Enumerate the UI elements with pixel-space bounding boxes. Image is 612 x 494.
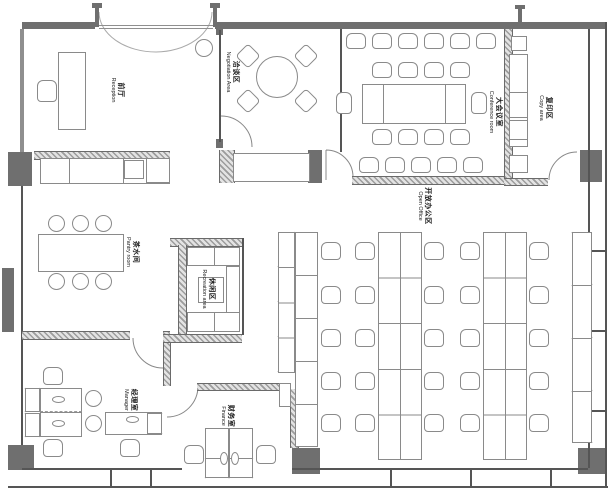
wall [21,186,23,445]
guest-chair [85,390,102,407]
office-chair [424,329,444,347]
wall [22,22,95,29]
room-label-manager-en: Manager [123,389,129,411]
office-chair [424,372,444,390]
office-chair [184,445,204,464]
room-label-copy-en: Copy area [538,95,544,120]
window-mullion [150,470,152,487]
entrance-door-post-cap [210,3,220,8]
printer [509,120,528,140]
office-chair [424,129,444,145]
office-chair [424,33,444,49]
office-chair [321,286,341,304]
office-chair [336,92,352,114]
entrance-door-post-cap [92,3,102,8]
room-label-open-office: 开放办公区 Open Office [417,187,431,225]
keyboard [220,452,228,465]
partition-wall [504,178,548,186]
copy-cabinet [511,36,527,51]
office-chair [359,157,379,173]
wall [20,29,24,152]
room-label-reception-zh: 前厅 [116,83,124,98]
room-label-copy: 复印区 Copy area [538,95,552,120]
column-pillar [580,150,602,182]
room-label-finance-zh: 财务室 [226,405,234,428]
sofa-bench [226,266,240,313]
partition-wall [22,331,130,340]
office-chair [450,129,470,145]
window-mullion [470,470,472,487]
desk-column [295,232,318,447]
office-chair [398,62,418,78]
office-chair [321,329,341,347]
x-cabinet [25,413,40,437]
pantry-table [38,234,124,272]
reception-desk [58,52,86,130]
wall-post-cap [515,5,525,9]
office-chair [321,414,341,432]
cooktop [124,160,144,179]
office-chair [398,33,418,49]
room-label-manager: 经理室 Manager [123,389,137,412]
wall [219,30,221,142]
window-wall-outer [8,486,608,488]
office-chair [372,33,392,49]
wall [242,238,244,335]
office-chair [460,372,480,390]
office-chair [346,33,366,49]
office-chair [460,286,480,304]
window-wall-outer [605,22,607,488]
office-chair [256,445,276,464]
office-chair [529,372,549,390]
room-label-recreation-en: Recreation area [201,269,207,308]
office-chair [355,242,375,260]
room-label-manager-zh: 经理室 [129,389,137,412]
window-wall [22,468,182,470]
office-chair [437,157,457,173]
office-chair [355,372,375,390]
partition-wall [163,338,171,386]
room-label-recreation: 休闲区 Recreation area [201,269,215,308]
room-label-negotiation: 洽谈区 Negotiation Area [225,52,239,93]
office-chair [43,439,63,457]
wall-stub [308,150,322,183]
stool [72,273,89,290]
room-label-conference: 大会议室 Conference room [488,91,502,134]
floor-plan: 前厅 Reception 洽谈区 Negotiation Area 大会议室 C… [0,0,612,494]
office-chair [529,414,549,432]
x-cabinet [25,388,40,412]
column-pillar [8,445,34,470]
room-label-copy-zh: 复印区 [544,97,552,120]
room-label-reception: 前厅 Reception [110,78,124,103]
keyboard [52,420,65,427]
office-chair [321,372,341,390]
keyboard [126,416,139,423]
office-chair [450,62,470,78]
room-label-pantry-en: Pantry room [125,237,131,267]
partition-wall [163,334,242,343]
entrance-door-post [213,6,217,27]
office-chair [321,242,341,260]
room-label-reception-en: Reception [110,78,116,103]
window-mullion [550,470,552,487]
office-chair [476,33,496,49]
office-chair [372,129,392,145]
room-label-pantry-zh: 茶水间 [131,241,139,264]
stool [48,215,65,232]
room-label-open-office-zh: 开放办公区 [423,187,431,225]
room-label-open-office-en: Open Office [417,191,423,220]
sofa-bench [187,312,240,332]
sofa-bench [187,247,240,266]
window-mullion [390,470,392,487]
office-chair [385,157,405,173]
office-chair [355,329,375,347]
conference-table [362,84,466,124]
locker [279,383,291,407]
room-label-finance-en: Finance [220,406,226,426]
office-chair [398,129,418,145]
office-chair [460,414,480,432]
office-chair [529,329,549,347]
keyboard [52,396,65,403]
wall-post [518,8,522,22]
office-chair [529,242,549,260]
entrance-door-post [95,6,99,27]
room-label-recreation-zh: 休闲区 [207,278,215,301]
office-chair [424,62,444,78]
stool [95,273,112,290]
keyboard [231,452,239,465]
partition-wall [352,176,504,185]
office-chair [43,367,63,385]
partition-wall [197,383,291,391]
coat-closet [233,153,310,182]
photocopier [509,92,528,118]
office-chair [411,157,431,173]
desk-bank [378,232,422,460]
partition-wall [178,245,187,334]
column-pillar [8,152,32,186]
bookshelf-cabinets [278,232,295,373]
room-label-negotiation-en: Negotiation Area [225,52,231,93]
office-chair [529,286,549,304]
x-cabinet [147,413,162,434]
bookshelf-cabinets [572,232,592,443]
office-chair [355,286,375,304]
column-pillar [578,448,606,474]
negotiation-round-table [256,56,298,98]
entrance-threshold [99,25,213,26]
column-pillar [2,268,14,332]
window-mullion [110,470,112,487]
office-chair [424,242,444,260]
room-label-negotiation-zh: 洽谈区 [231,61,239,84]
office-chair [424,286,444,304]
exhaust-fan [146,158,170,183]
office-chair [424,414,444,432]
stool [72,215,89,232]
office-chair [460,329,480,347]
office-chair [355,414,375,432]
guest-chair [195,39,213,57]
wall [340,29,342,152]
office-chair [450,33,470,49]
office-chair [120,439,140,457]
stool [48,273,65,290]
window-wall [292,468,588,470]
room-label-pantry: 茶水间 Pantry room [125,237,139,267]
office-chair [460,242,480,260]
office-chair [463,157,483,173]
stool [95,215,112,232]
entrance-threshold [99,28,213,29]
desk-bank [483,232,527,460]
room-label-conference-en: Conference room [488,91,494,134]
office-chair [37,80,57,102]
office-chair [471,92,487,114]
guest-chair [85,415,102,432]
wall [215,22,606,29]
paper-shredder [509,155,528,173]
office-chair [372,62,392,78]
room-label-finance: 财务室 Finance [220,405,234,428]
column-pillar [292,448,320,474]
room-label-conference-zh: 大会议室 [494,97,502,127]
